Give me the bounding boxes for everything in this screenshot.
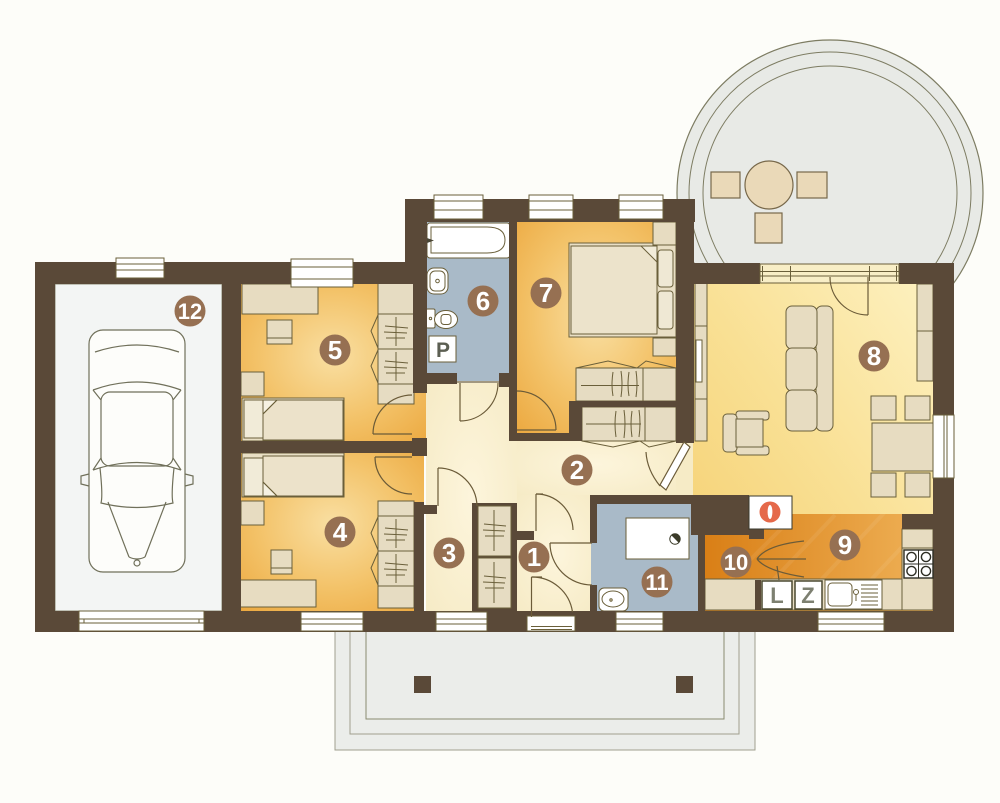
svg-text:4: 4 bbox=[333, 517, 348, 547]
svg-text:5: 5 bbox=[328, 335, 342, 365]
svg-text:12: 12 bbox=[178, 299, 202, 324]
svg-text:9: 9 bbox=[838, 530, 852, 560]
svg-text:2: 2 bbox=[570, 455, 584, 485]
svg-text:7: 7 bbox=[539, 278, 553, 308]
svg-text:3: 3 bbox=[442, 538, 456, 568]
svg-text:P: P bbox=[436, 339, 450, 362]
svg-text:Z: Z bbox=[801, 583, 814, 608]
svg-text:6: 6 bbox=[476, 286, 490, 316]
svg-text:10: 10 bbox=[724, 550, 748, 575]
svg-text:1: 1 bbox=[527, 542, 541, 572]
svg-text:11: 11 bbox=[645, 570, 668, 595]
svg-text:8: 8 bbox=[867, 341, 881, 371]
svg-text:L: L bbox=[770, 583, 783, 608]
